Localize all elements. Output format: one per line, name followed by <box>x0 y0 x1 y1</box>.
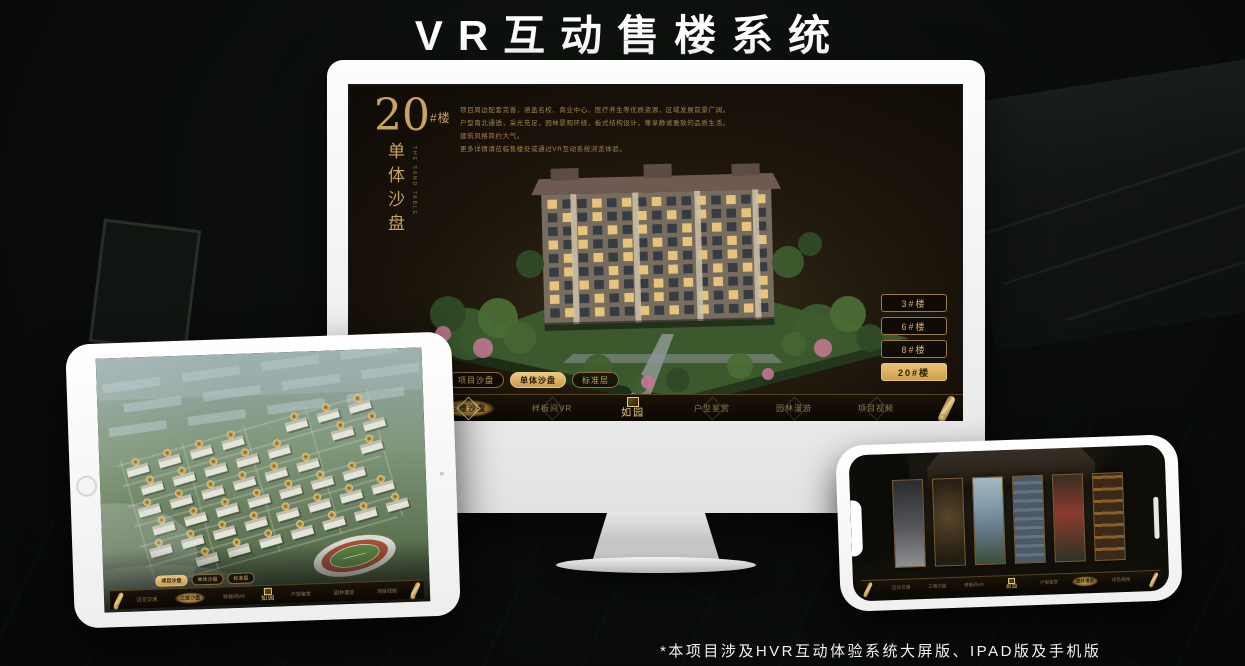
nav-item[interactable]: 项目视频 <box>1108 575 1134 586</box>
floor-button[interactable]: 3#楼 <box>881 294 947 312</box>
subtab[interactable]: 单体沙盘 <box>191 573 223 585</box>
scroll-icon[interactable] <box>410 581 421 598</box>
nav-item[interactable]: 户型鉴赏 <box>686 400 738 417</box>
scroll-icon[interactable] <box>113 592 124 609</box>
tablet-home-button[interactable] <box>76 475 98 497</box>
scroll-icon[interactable] <box>864 582 873 596</box>
floor-button-group: 3#楼6#楼8#楼20#楼 <box>881 294 947 381</box>
subtab[interactable]: 标准层 <box>572 372 619 388</box>
phone-screen: 区位交通三维沙盘样板间VR 如园 户型鉴赏园林漫游项目视频 <box>849 445 1170 602</box>
building-number-suffix: #楼 <box>430 111 451 125</box>
nav-item[interactable]: 户型鉴赏 <box>1036 577 1062 588</box>
page-title: VR互动售楼系统 <box>0 2 1245 63</box>
gallery-panel[interactable] <box>932 478 966 567</box>
nav-item[interactable]: 区位交通 <box>888 582 914 593</box>
nav-item[interactable]: 项目视频 <box>850 400 902 417</box>
gallery-panel[interactable] <box>1052 473 1086 562</box>
phone-notch <box>850 500 863 556</box>
stage: VR互动售楼系统 20#楼 单体沙盘 THE SAND TABLE 项目周边配套… <box>0 0 1245 666</box>
tablet-nav-logo[interactable]: 如园 <box>261 588 275 602</box>
nav-item[interactable]: 园林漫游 <box>768 400 820 417</box>
subtab[interactable]: 项目沙盘 <box>155 575 187 587</box>
scroll-icon[interactable] <box>1149 572 1158 586</box>
tablet-device: 项目沙盘单体沙盘标准层 区位交通三维沙盘样板间VR 如园 户型鉴赏园林漫游项目视… <box>65 331 461 628</box>
nav-item[interactable]: 园林漫游 <box>329 586 359 598</box>
background-screenshot <box>957 58 1245 352</box>
nav-item[interactable]: 样板间VR <box>218 590 250 602</box>
nav-item[interactable]: 样板间VR <box>960 580 988 591</box>
background-plaque <box>89 218 201 353</box>
phone-device: 区位交通三维沙盘样板间VR 如园 户型鉴赏园林漫游项目视频 <box>835 434 1183 612</box>
screen-glare <box>96 347 431 612</box>
tablet-camera <box>440 472 444 476</box>
nav-item[interactable]: 户型鉴赏 <box>286 588 316 600</box>
monitor-subtabs: 项目沙盘单体沙盘标准层 <box>448 372 619 388</box>
floor-button[interactable]: 20#楼 <box>881 363 947 381</box>
monitor-nav-logo[interactable]: 如园 <box>621 397 645 419</box>
phone-nav-logo[interactable]: 如园 <box>1006 578 1018 590</box>
gallery-panel[interactable] <box>1012 475 1046 564</box>
logo-text: 如园 <box>261 596 275 602</box>
gallery-panels <box>892 472 1126 568</box>
nav-item[interactable]: 区位交通 <box>132 593 162 605</box>
description-line: 户型南北通透，采光充足，园林景观环绕，板式结构设计，尊享静谧雅致的品质生活。 <box>460 117 890 130</box>
footnote: *本项目涉及HVR互动体验系统大屏版、IPAD版及手机版 <box>660 640 1101 661</box>
nav-item[interactable]: 项目视频 <box>372 585 402 597</box>
nav-item[interactable]: 园林漫游 <box>1072 576 1098 587</box>
logo-text: 如园 <box>621 409 645 419</box>
subtab[interactable]: 标准层 <box>227 572 254 584</box>
nav-item[interactable]: 样板间VR <box>524 400 580 417</box>
tablet-screen: 项目沙盘单体沙盘标准层 区位交通三维沙盘样板间VR 如园 户型鉴赏园林漫游项目视… <box>96 347 431 612</box>
description-line: 项目周边配套完善，涵盖名校、商业中心、医疗养生等优质资源，区域发展前景广阔。 <box>460 104 890 117</box>
monitor-stand-foot <box>556 557 756 573</box>
floor-button[interactable]: 8#楼 <box>881 340 947 358</box>
gallery-panel[interactable] <box>972 476 1006 565</box>
floor-button[interactable]: 6#楼 <box>881 317 947 335</box>
gallery-panel[interactable] <box>892 479 926 568</box>
logo-seal-icon <box>627 397 639 407</box>
subtab[interactable]: 项目沙盘 <box>448 372 504 388</box>
subtab[interactable]: 单体沙盘 <box>510 372 566 388</box>
scroll-icon[interactable] <box>938 395 957 421</box>
nav-item[interactable]: 三维沙盘 <box>175 592 205 604</box>
logo-seal-icon <box>264 588 272 595</box>
logo-text: 如园 <box>1006 585 1018 590</box>
building-number: 20 <box>374 90 430 141</box>
nav-item[interactable]: 三维沙盘 <box>924 581 950 592</box>
gallery-panel[interactable] <box>1092 472 1126 561</box>
monitor-stand-neck <box>592 512 720 562</box>
